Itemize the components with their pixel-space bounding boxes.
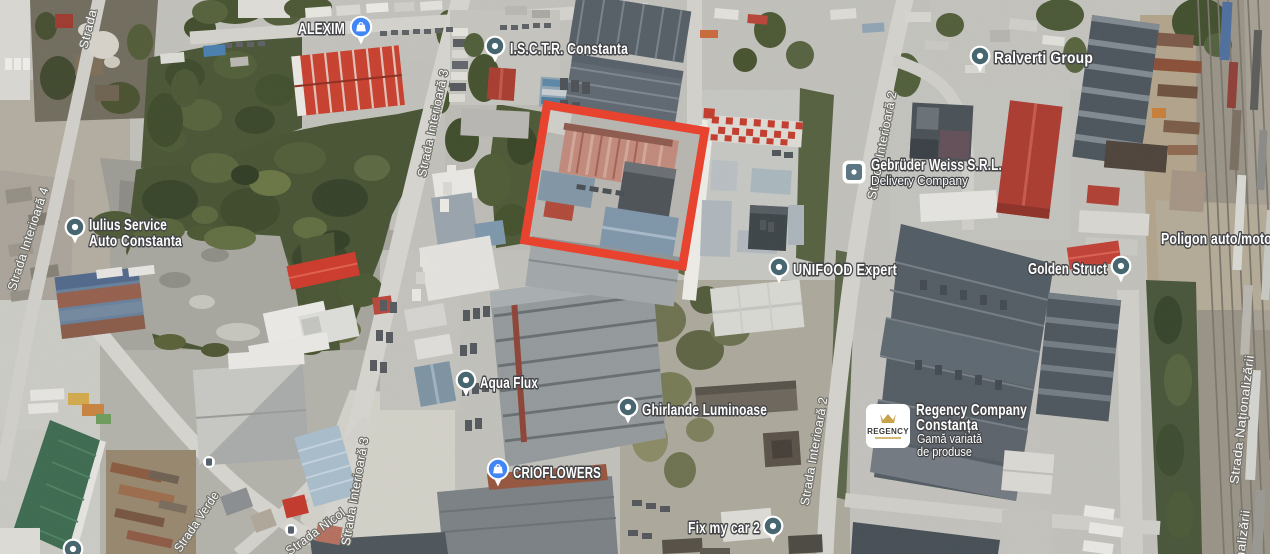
svg-text:de produse: de produse	[917, 444, 972, 459]
svg-text:UNIFOOD Expert: UNIFOOD Expert	[793, 262, 897, 279]
svg-text:Aqua Flux: Aqua Flux	[480, 375, 538, 392]
svg-text:Ralverti Group: Ralverti Group	[994, 50, 1093, 67]
svg-text:Ghirlande Luminoase: Ghirlande Luminoase	[642, 402, 767, 419]
svg-text:Fix my car 2: Fix my car 2	[688, 520, 760, 537]
svg-text:ALEXIM: ALEXIM	[298, 21, 345, 38]
svg-text:I.S.C.T.R. Constanta: I.S.C.T.R. Constanta	[510, 41, 628, 58]
svg-text:Gebrüder Weiss S.R.L.: Gebrüder Weiss S.R.L.	[871, 157, 1002, 174]
svg-text:Golden Struct: Golden Struct	[1028, 261, 1107, 278]
svg-text:Auto Constanta: Auto Constanta	[89, 233, 182, 250]
svg-text:Delivery Company: Delivery Company	[871, 174, 969, 188]
svg-text:REGENCY: REGENCY	[867, 427, 909, 436]
svg-text:Poligon auto/motoc: Poligon auto/motoc	[1161, 231, 1270, 248]
svg-text:CRIOFLOWERS: CRIOFLOWERS	[513, 465, 601, 482]
svg-text:Iulius Service: Iulius Service	[89, 217, 167, 234]
